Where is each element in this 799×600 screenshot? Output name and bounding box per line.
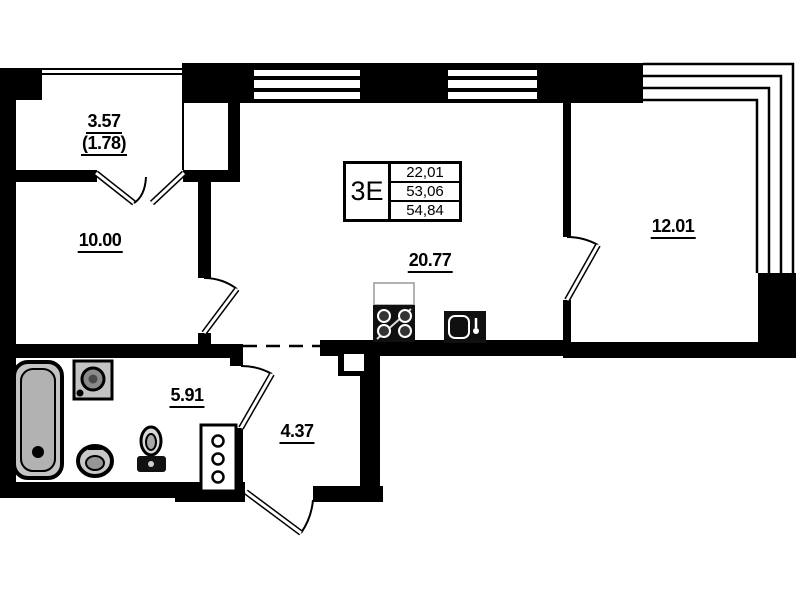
window-1-slits: [254, 70, 360, 99]
bedroom-left-door: [204, 278, 237, 333]
entrance-door: [246, 492, 313, 533]
room-area-label-hallway: 4.37: [279, 422, 314, 444]
floor-plan-drawing: [0, 0, 799, 600]
room-area-label-balcony: 3.57 (1.78): [81, 112, 127, 156]
room-area-label-bedroom-right: 12.01: [651, 217, 696, 239]
room-bedroom-left-region: [16, 182, 198, 344]
apartment-area-value-2: 53,06: [391, 183, 459, 202]
room-area-label-bathroom: 5.91: [169, 386, 204, 408]
room-area-label-kitchen-living: 20.77: [408, 251, 453, 273]
room-hallway-region: [243, 348, 360, 486]
room-bathroom-region: [16, 358, 230, 482]
apartment-type-label: 3Е: [346, 164, 391, 219]
floor-plan: 3.57 (1.78) 10.00 20.77 12.01 5.91 4.37 …: [0, 0, 799, 600]
apartment-area-value-3: 54,84: [391, 202, 459, 219]
window-2-slits: [448, 70, 537, 99]
apartment-area-value-1: 22,01: [391, 164, 459, 183]
apartment-info-table: 3Е 22,01 53,06 54,84: [343, 161, 462, 222]
room-area-label-bedroom-left: 10.00: [78, 231, 123, 253]
